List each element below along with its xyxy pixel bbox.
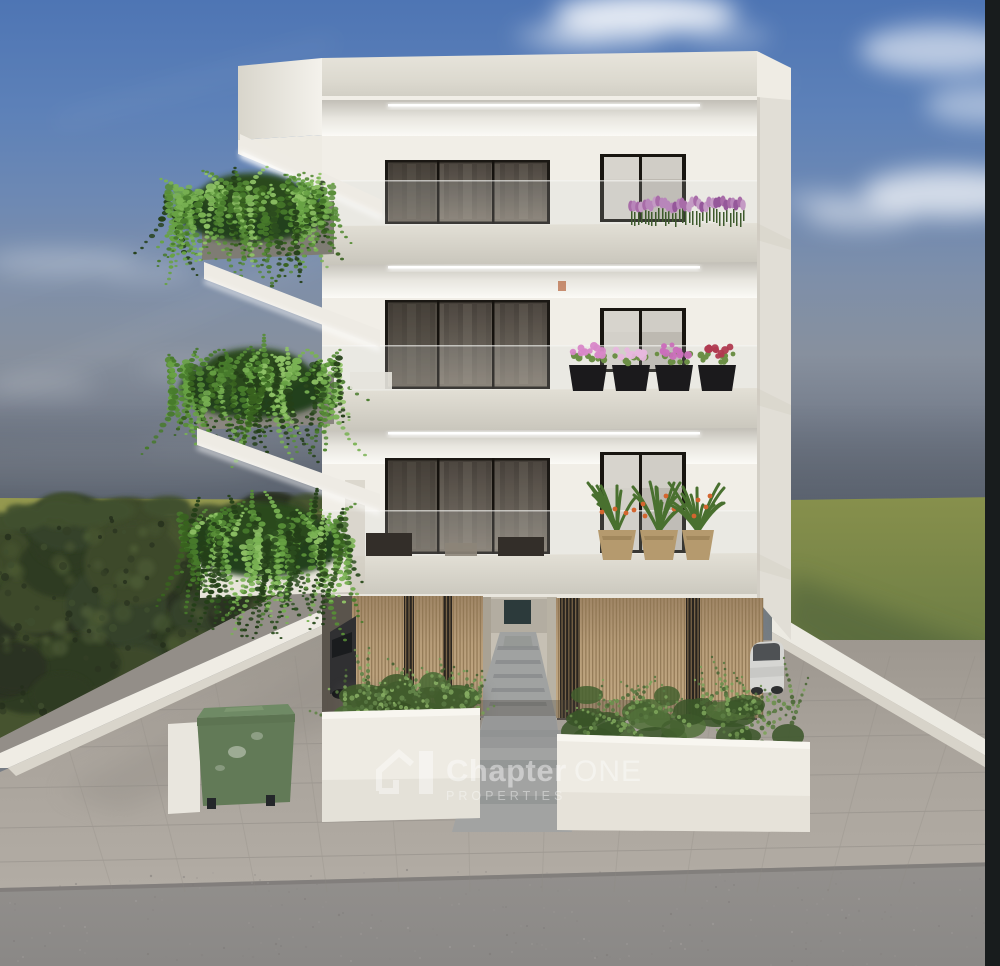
svg-text:Chapter: Chapter xyxy=(446,753,567,788)
svg-text:PROPERTIES: PROPERTIES xyxy=(446,789,566,803)
svg-text:ONE: ONE xyxy=(574,755,642,788)
